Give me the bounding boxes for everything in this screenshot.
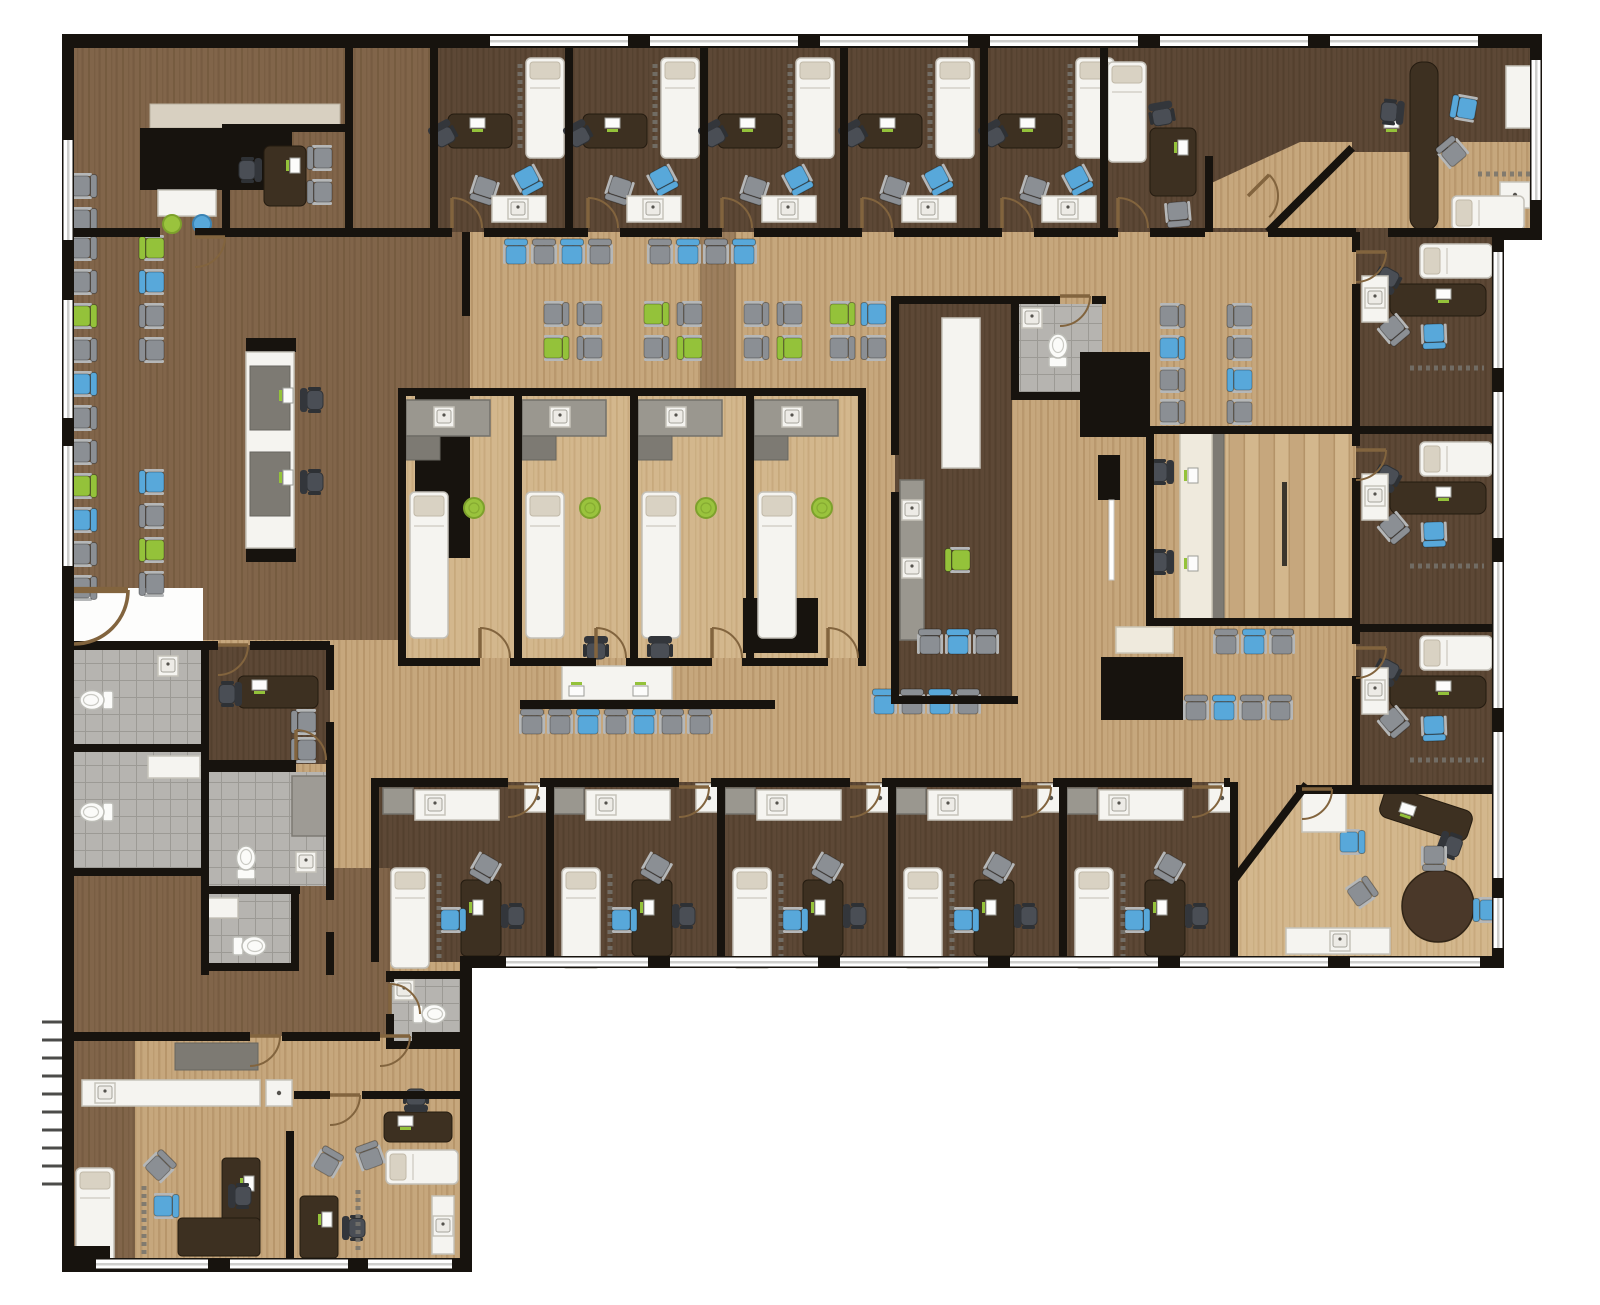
window <box>230 1260 348 1269</box>
nurse-station <box>1180 428 1224 622</box>
corridor-chair-row <box>519 709 713 734</box>
window <box>670 958 818 967</box>
chair-icon <box>72 173 97 199</box>
window <box>1350 958 1480 967</box>
kids-table <box>158 190 216 216</box>
toilet-icon <box>413 1005 446 1024</box>
window <box>650 36 798 46</box>
handrail <box>1282 482 1287 566</box>
shower <box>292 776 328 836</box>
office-chair-icon <box>647 636 673 659</box>
window <box>1532 60 1541 200</box>
window <box>64 300 73 418</box>
stool-icon <box>163 215 181 233</box>
reception-desk <box>246 338 296 562</box>
floor-plan-page <box>0 0 1600 1305</box>
window <box>96 1260 208 1269</box>
counter <box>175 1043 258 1070</box>
window <box>490 36 628 46</box>
ramp-floor <box>1226 428 1352 618</box>
glass-partition <box>1109 500 1114 580</box>
sink-icon <box>394 980 414 1000</box>
window <box>1494 898 1503 948</box>
office-chair-icon <box>1151 459 1174 485</box>
window <box>1494 732 1503 878</box>
counter <box>148 756 200 778</box>
window <box>1010 958 1158 967</box>
window <box>64 446 73 566</box>
office-chair-icon <box>1151 549 1174 575</box>
sink-icon <box>158 656 178 676</box>
toilet-icon <box>1049 334 1068 367</box>
shaft-block <box>1101 657 1183 720</box>
window <box>1494 562 1503 708</box>
sink-icon <box>1022 308 1042 328</box>
window <box>1160 36 1308 46</box>
counter <box>1116 627 1173 653</box>
sink-icon <box>95 1083 115 1103</box>
window <box>506 958 648 967</box>
office-chair-icon <box>300 469 323 495</box>
waiting-chairs <box>72 235 97 601</box>
checkout-desk <box>562 666 672 700</box>
toilet-icon <box>80 691 113 710</box>
toilet-icon <box>237 846 256 879</box>
counter <box>208 898 238 918</box>
window <box>368 1260 452 1269</box>
window <box>990 36 1138 46</box>
window <box>1180 958 1328 967</box>
window <box>1494 252 1503 368</box>
window <box>64 140 73 240</box>
wall-stub <box>1098 455 1120 500</box>
window <box>1494 392 1503 538</box>
window <box>820 36 968 46</box>
window <box>840 958 988 967</box>
sink-icon <box>296 852 316 872</box>
toilet-icon <box>233 937 266 956</box>
window <box>1330 36 1478 46</box>
chair-icon <box>945 547 970 573</box>
office-chair-icon <box>300 387 323 413</box>
toilet-icon <box>80 803 113 822</box>
floor-plan <box>0 0 1600 1305</box>
